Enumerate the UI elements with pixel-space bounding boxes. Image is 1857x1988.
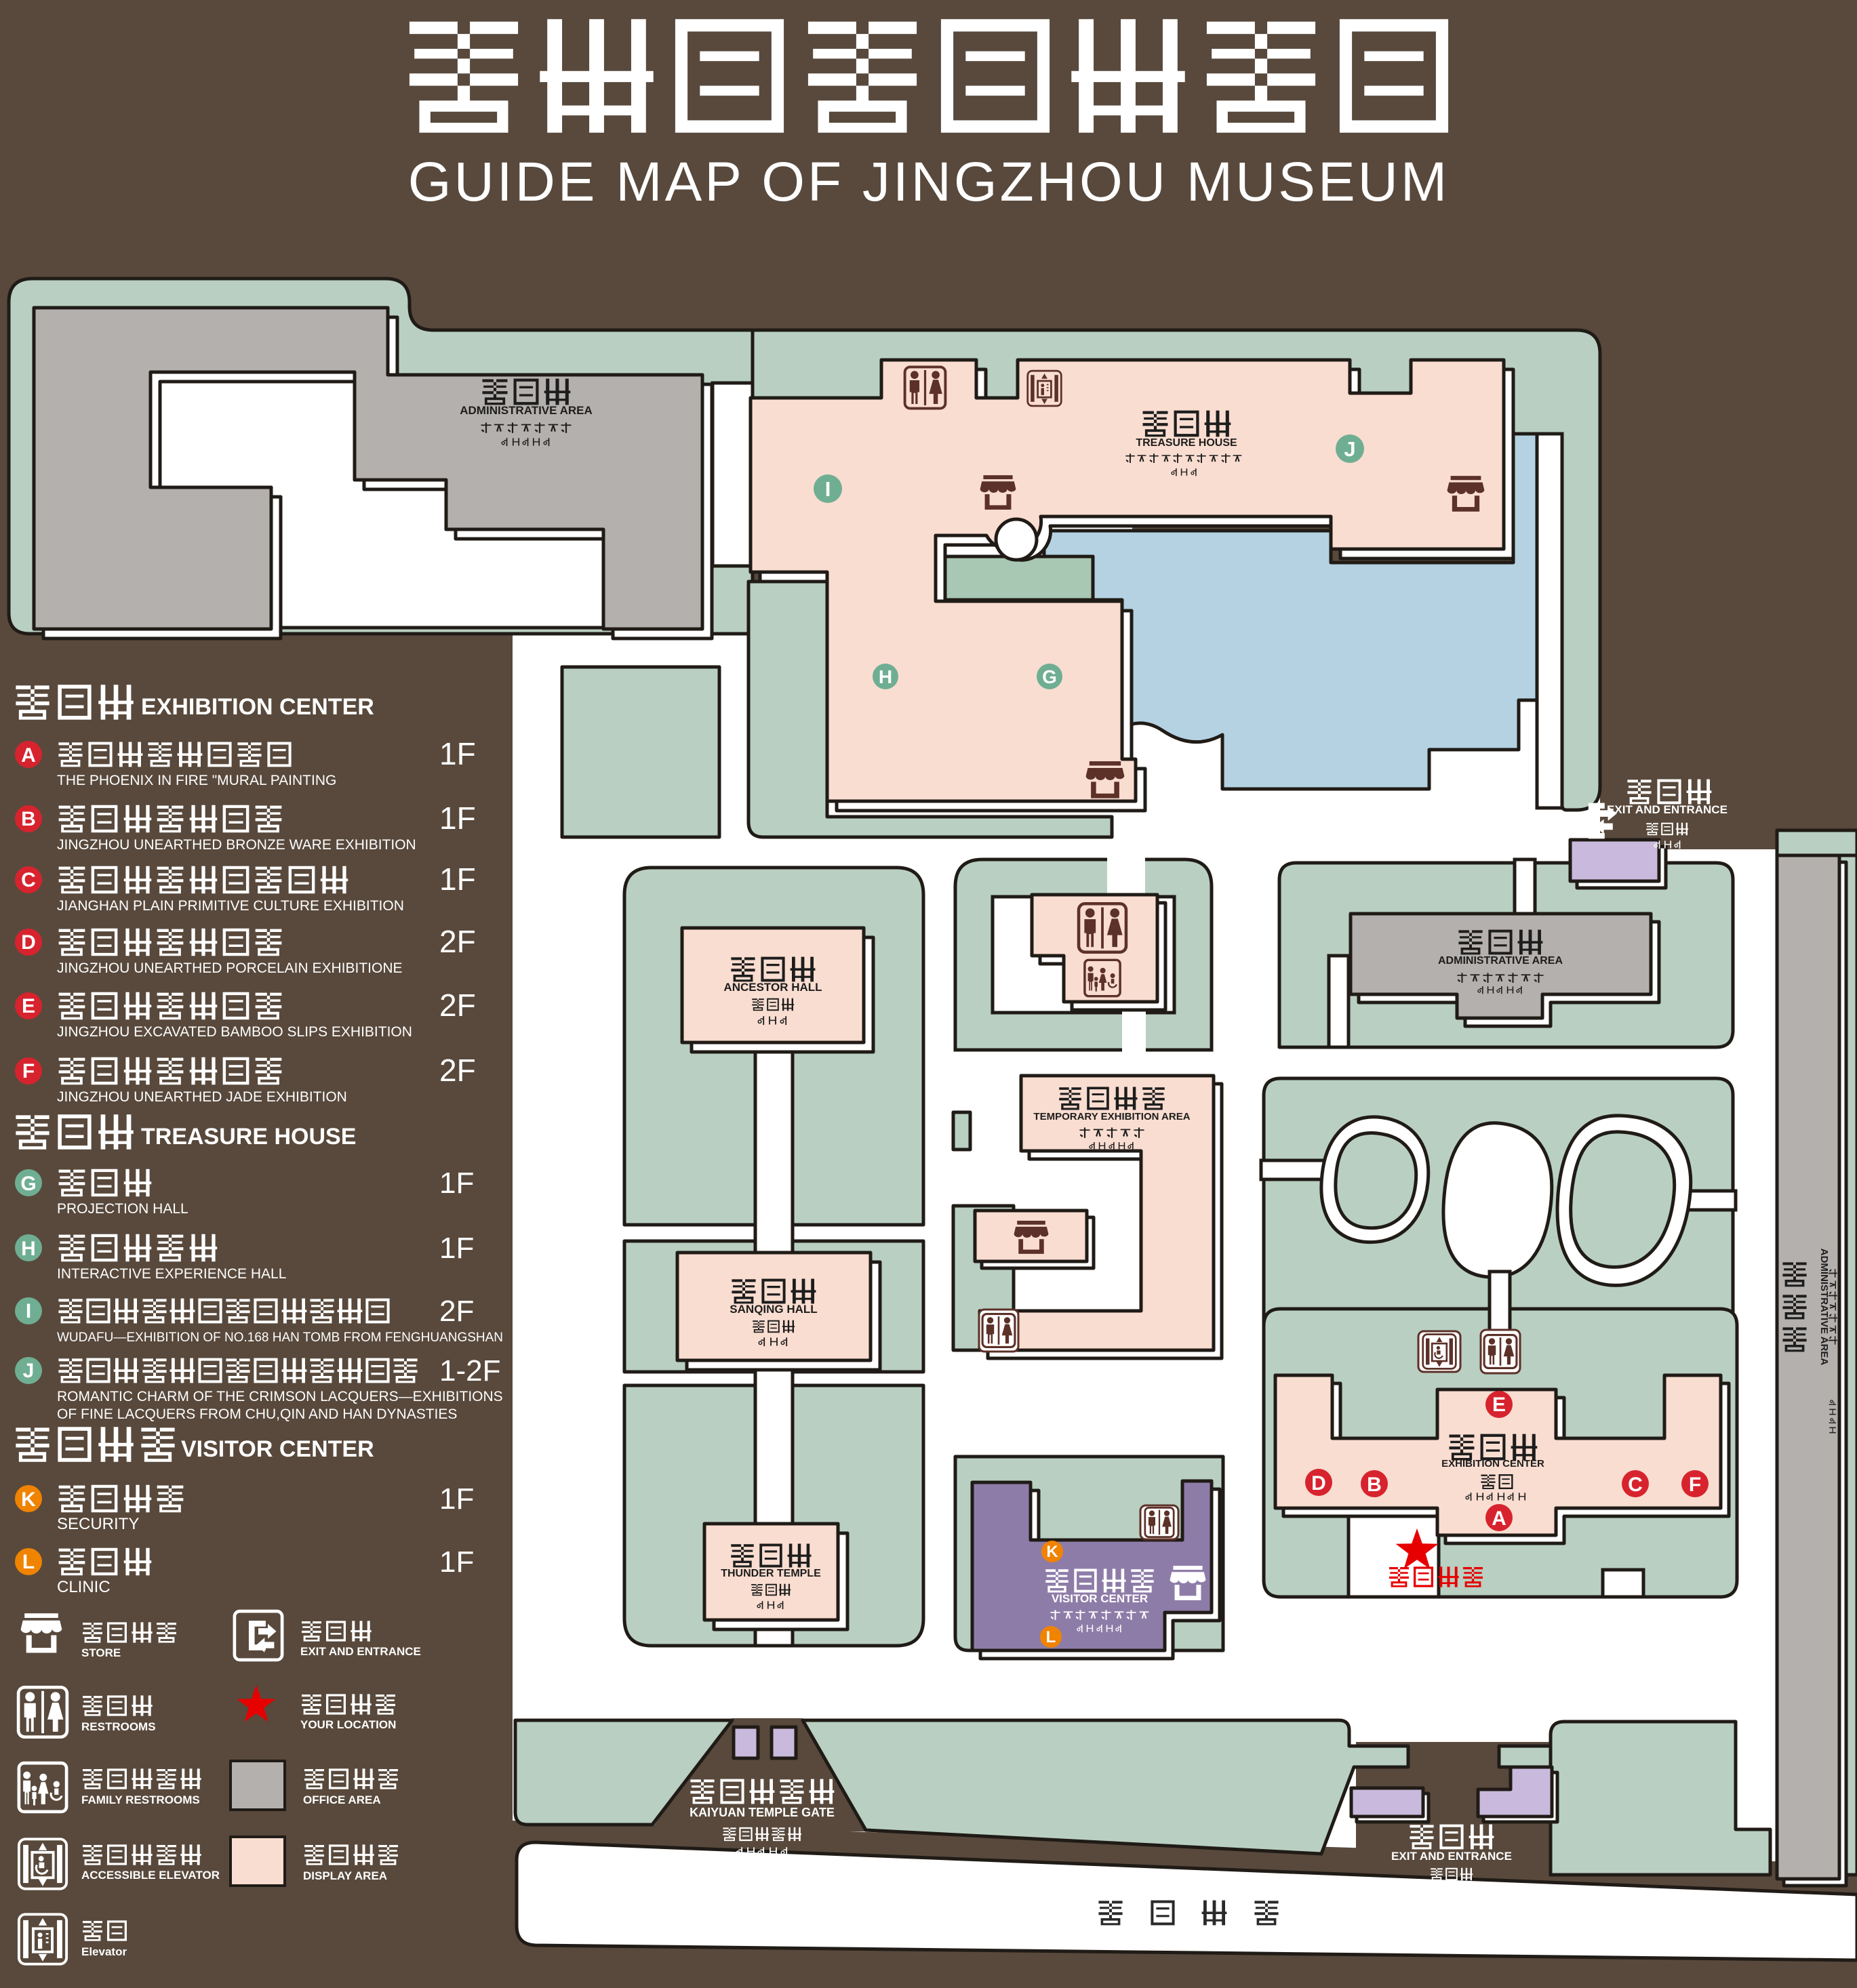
svg-text:SANQING HALL: SANQING HALL	[730, 1303, 817, 1316]
svg-text:1F: 1F	[439, 1545, 474, 1579]
svg-text:2F: 2F	[439, 1053, 476, 1088]
svg-text:JIANGHAN PLAIN PRIMITIVE CULTU: JIANGHAN PLAIN PRIMITIVE CULTURE EXHIBIT…	[57, 898, 404, 914]
svg-text:K: K	[1046, 1543, 1058, 1561]
svg-text:EXIT AND ENTRANCE: EXIT AND ENTRANCE	[300, 1645, 421, 1658]
svg-text:EXHIBITION CENTER: EXHIBITION CENTER	[1441, 1458, 1544, 1469]
svg-text:E: E	[22, 995, 35, 1017]
svg-text:D: D	[21, 931, 36, 954]
svg-text:TREASURE HOUSE: TREASURE HOUSE	[141, 1124, 356, 1150]
svg-text:1F: 1F	[439, 736, 476, 771]
svg-text:I: I	[26, 1300, 31, 1322]
svg-text:VISITOR CENTER: VISITOR CENTER	[181, 1436, 374, 1462]
svg-text:1F: 1F	[439, 861, 476, 897]
svg-text:TREASURE HOUSE: TREASURE HOUSE	[1136, 437, 1237, 449]
svg-text:OF FINE LACQUERS FROM CHU,QIN: OF FINE LACQUERS FROM CHU,QIN AND HAN DY…	[57, 1406, 457, 1422]
svg-text:OFFICE AREA: OFFICE AREA	[303, 1793, 381, 1806]
svg-text:1F: 1F	[439, 1167, 474, 1200]
svg-text:FAMILY RESTROOMS: FAMILY RESTROOMS	[81, 1793, 200, 1806]
svg-text:DISPLAY AREA: DISPLAY AREA	[303, 1869, 387, 1882]
svg-text:ACCESSIBLE ELEVATOR: ACCESSIBLE ELEVATOR	[81, 1869, 220, 1882]
svg-text:C: C	[1628, 1474, 1643, 1496]
svg-text:ANCESTOR HALL: ANCESTOR HALL	[723, 981, 822, 994]
svg-text:L: L	[22, 1551, 35, 1573]
svg-text:WUDAFU—EXHIBITION OF NO.168 HA: WUDAFU—EXHIBITION OF NO.168 HAN TOMB FRO…	[57, 1331, 503, 1345]
svg-text:YOUR LOCATION: YOUR LOCATION	[300, 1718, 396, 1731]
svg-text:SECURITY: SECURITY	[57, 1515, 139, 1533]
svg-text:RESTROOMS: RESTROOMS	[81, 1720, 156, 1733]
svg-text:C: C	[21, 869, 36, 891]
svg-text:THUNDER TEMPLE: THUNDER TEMPLE	[721, 1568, 821, 1579]
svg-text:1F: 1F	[439, 1232, 474, 1265]
svg-text:THE PHOENIX IN FIRE "MURAL PAI: THE PHOENIX IN FIRE "MURAL PAINTING	[57, 773, 336, 788]
svg-text:L: L	[1046, 1628, 1056, 1646]
svg-text:G: G	[1042, 666, 1057, 687]
svg-text:J: J	[23, 1360, 35, 1382]
svg-text:A: A	[21, 744, 36, 767]
svg-text:JINGZHOU UNEARTHED PORCELAIN E: JINGZHOU UNEARTHED PORCELAIN EXHIBITIONE	[57, 960, 403, 976]
svg-text:H: H	[879, 666, 892, 687]
svg-text:JINGZHOU EXCAVATED BAMBOO SLIP: JINGZHOU EXCAVATED BAMBOO SLIPS EXHIBITI…	[57, 1024, 412, 1040]
svg-text:2F: 2F	[439, 924, 476, 959]
svg-text:EXIT AND ENTRANCE: EXIT AND ENTRANCE	[1391, 1850, 1512, 1863]
svg-text:B: B	[21, 808, 36, 830]
svg-text:B: B	[1367, 1474, 1382, 1496]
svg-text:EXIT AND ENTRANCE: EXIT AND ENTRANCE	[1607, 803, 1728, 816]
svg-text:ADMINISTRATIVE AREA: ADMINISTRATIVE AREA	[1438, 955, 1563, 967]
svg-text:EXHIBITION CENTER: EXHIBITION CENTER	[141, 694, 374, 720]
svg-text:JINGZHOU UNEARTHED JADE EXHIBI: JINGZHOU UNEARTHED JADE EXHIBITION	[57, 1089, 347, 1105]
svg-text:STORE: STORE	[81, 1646, 121, 1659]
svg-text:I: I	[825, 477, 831, 501]
svg-text:F: F	[22, 1060, 35, 1082]
svg-text:ROMANTIC CHARM OF THE CRIMSON: ROMANTIC CHARM OF THE CRIMSON LACQUERS—E…	[57, 1389, 503, 1404]
svg-text:PROJECTION HALL: PROJECTION HALL	[57, 1201, 188, 1217]
svg-text:A: A	[1492, 1507, 1506, 1530]
svg-text:2F: 2F	[439, 1295, 474, 1328]
svg-text:1-2F: 1-2F	[439, 1354, 500, 1387]
svg-text:1F: 1F	[439, 800, 476, 836]
svg-text:E: E	[1492, 1394, 1506, 1416]
svg-text:D: D	[1311, 1472, 1326, 1495]
svg-text:KAIYUAN TEMPLE GATE: KAIYUAN TEMPLE GATE	[690, 1806, 835, 1819]
svg-text:INTERACTIVE EXPERIENCE HALL: INTERACTIVE EXPERIENCE HALL	[57, 1266, 286, 1282]
svg-text:TEMPORARY EXHIBITION AREA: TEMPORARY EXHIBITION AREA	[1033, 1111, 1190, 1122]
svg-text:GUIDE MAP OF JINGZHOU MUSEUM: GUIDE MAP OF JINGZHOU MUSEUM	[408, 151, 1450, 213]
svg-text:ADMINISTRATIVE AREA: ADMINISTRATIVE AREA	[460, 404, 593, 417]
svg-text:F: F	[1689, 1474, 1701, 1496]
svg-text:J: J	[1344, 437, 1355, 461]
svg-text:2F: 2F	[439, 988, 476, 1023]
svg-text:Elevator: Elevator	[81, 1945, 127, 1958]
svg-text:K: K	[21, 1488, 36, 1511]
svg-text:1F: 1F	[439, 1482, 474, 1516]
svg-text:G: G	[20, 1173, 36, 1195]
svg-text:H: H	[21, 1238, 36, 1260]
svg-text:JINGZHOU UNEARTHED BRONZE WARE: JINGZHOU UNEARTHED BRONZE WARE EXHIBITIO…	[57, 837, 416, 853]
svg-text:ADMINISTRATIVE AREA: ADMINISTRATIVE AREA	[1818, 1249, 1830, 1366]
svg-text:VISITOR CENTER: VISITOR CENTER	[1052, 1592, 1148, 1605]
svg-text:CLINIC: CLINIC	[57, 1578, 111, 1596]
